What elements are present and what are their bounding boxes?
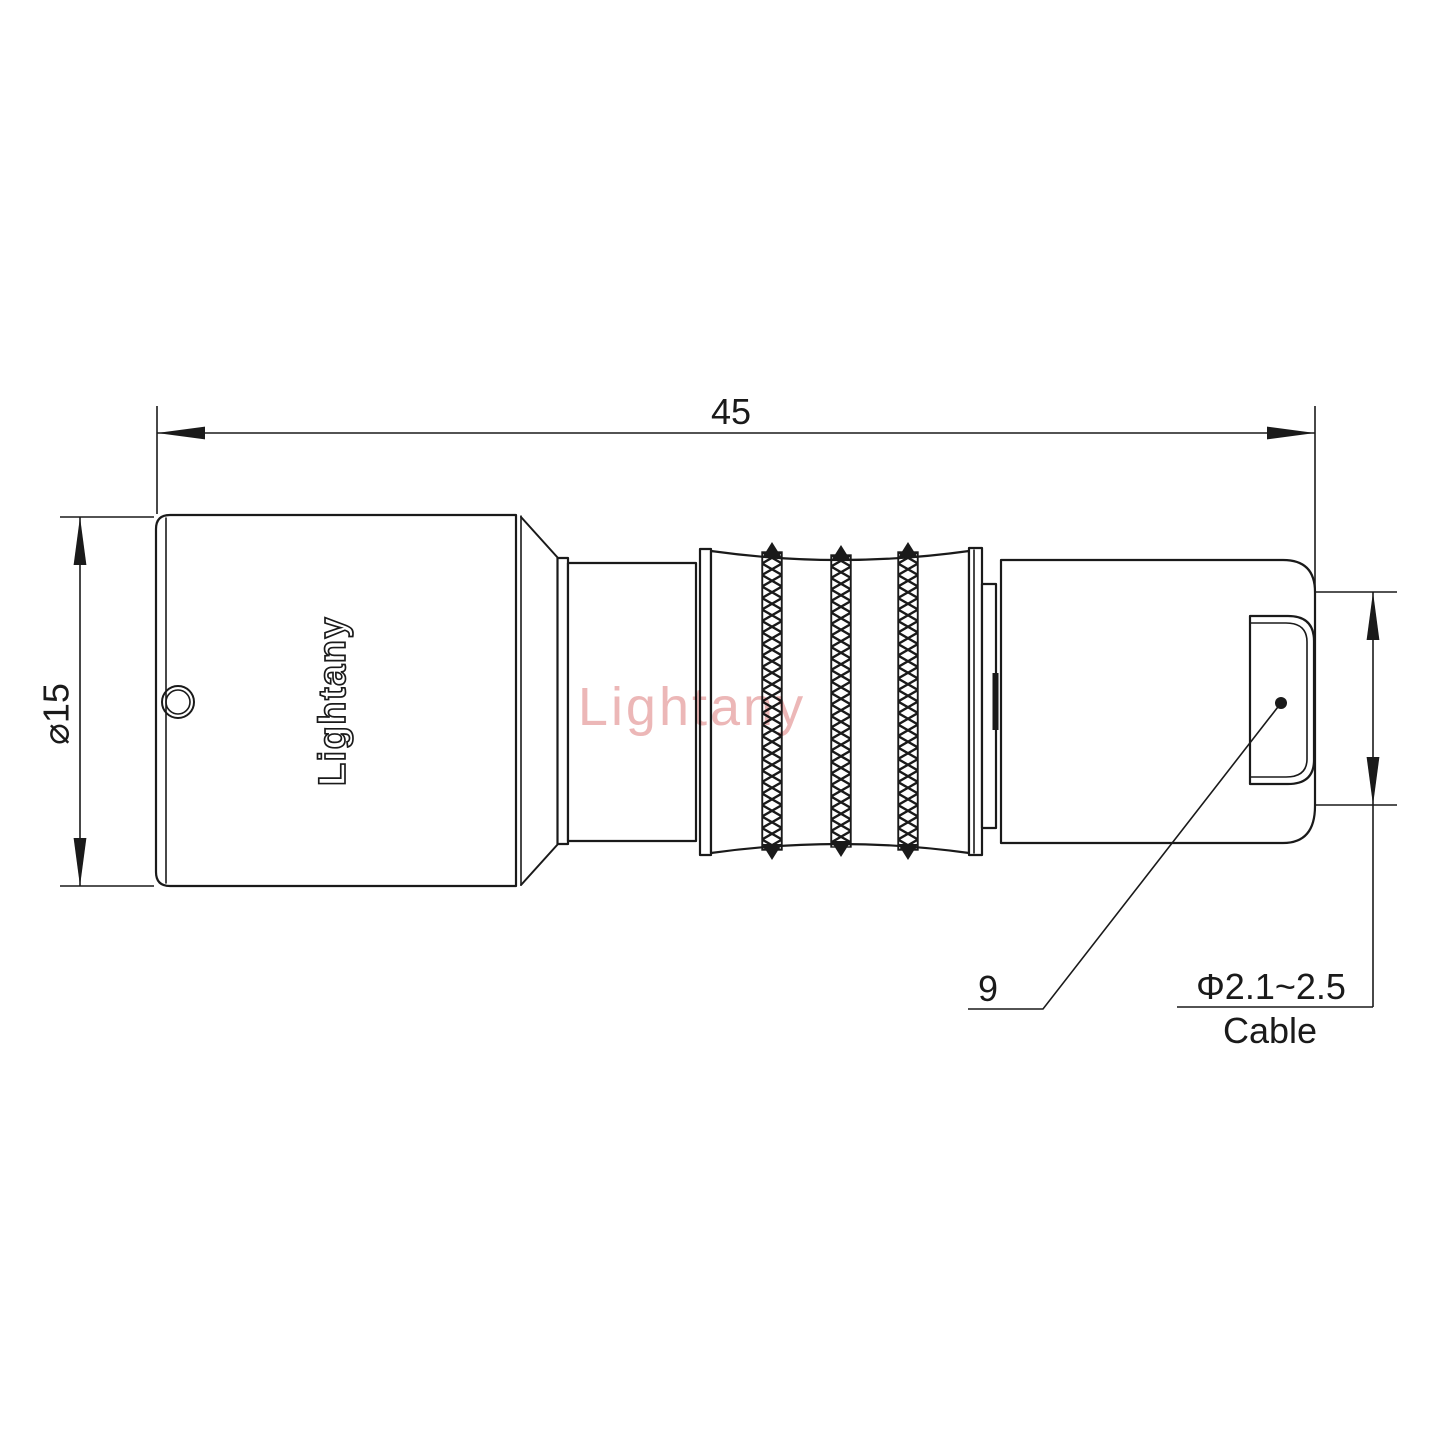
taper-ring (558, 558, 569, 844)
rear-length-value: 9 (978, 968, 998, 1009)
watermark-text: Lightany (578, 677, 806, 737)
front-nut: Lightany (156, 515, 521, 886)
rear-ring (982, 584, 999, 828)
engraved-brand-label: Lightany (312, 616, 354, 786)
knurl-band (898, 542, 918, 860)
drum-right-flange (969, 548, 982, 855)
overall-length-value: 45 (711, 391, 751, 432)
cable-label: Cable (1223, 1010, 1317, 1051)
knurl-band (831, 545, 851, 857)
arrowhead-left (157, 427, 205, 440)
connector-technical-drawing: Lightany (0, 0, 1440, 1440)
arrowhead-down (74, 838, 87, 886)
ring-slot-mark (993, 673, 999, 730)
arrowhead-right (1267, 427, 1315, 440)
body-diameter-value: ⌀15 (36, 683, 77, 745)
drawing-canvas: Lightany (0, 0, 1440, 1440)
rear-body (1001, 560, 1315, 843)
arrowhead-down (1367, 757, 1380, 805)
taper-section (521, 517, 568, 885)
arrowhead-up (1367, 592, 1380, 640)
cable-diameter-value: Φ2.1~2.5 (1196, 966, 1346, 1007)
arrowhead-up (74, 517, 87, 565)
dimension-body-diameter: ⌀15 (36, 517, 155, 886)
